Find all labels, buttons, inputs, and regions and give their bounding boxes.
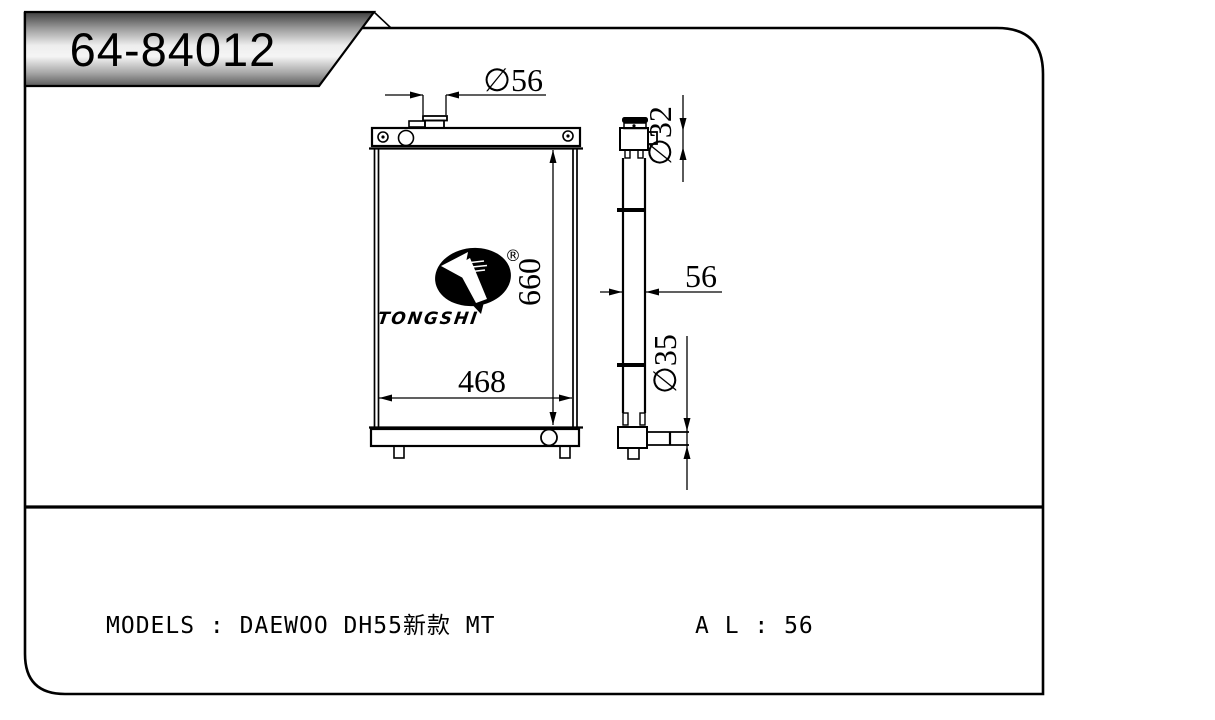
arrowhead [684,418,691,431]
dim-label-inlet-pipe: ∅32 [642,106,678,166]
side-filler-dot [632,124,635,127]
arrowhead [446,92,459,99]
dim-label-core-width: 468 [458,363,506,399]
arrowhead [684,446,691,459]
top-tank-bolt-left-dot [381,135,384,138]
side-pin-bottom-left [623,413,628,425]
arrowhead [609,289,622,296]
spec-column-left: MODELS : DAEWOO DH55新款 MT CORE SIZE : 66… [106,536,496,720]
spec-row-dpi: DPI : [695,716,814,720]
dim-filler-diameter: ∅56 [385,62,546,115]
spec-row-core-size: CORE SIZE : 660*468 [106,716,496,720]
dim-label-core-height: 660 [511,258,547,306]
arrowhead [410,92,423,99]
arrowhead [379,395,392,402]
side-bottom-foot [628,448,639,459]
dim-core-height: 660 [511,150,557,425]
spec-row-al: A L : 56 [695,608,814,644]
brand-name: TONGSHI [376,309,480,329]
drawing-sheet: ∅56 660 468 ∅32 [0,0,1215,720]
arrowhead [550,150,557,163]
spec-row-models: MODELS : DAEWOO DH55新款 MT [106,608,496,644]
dim-core-depth: 56 [600,258,722,296]
dim-outlet-pipe: ∅35 [647,334,691,490]
banner-ribbon-fold [374,12,391,28]
side-pin-top-left [625,150,630,158]
dim-label-filler-diameter: ∅56 [483,62,543,98]
part-number-banner: 64-84012 [25,12,391,86]
part-number-text: 64-84012 [70,23,277,76]
spec-column-right: A L : 56 DPI : OEM : NISSENS: [695,536,814,720]
top-tank-bolt-right-dot [566,134,569,137]
dim-inlet-pipe: ∅32 [642,95,687,182]
top-tank-port [399,131,414,146]
dim-label-outlet-pipe: ∅35 [647,334,683,394]
arrowhead [680,147,687,160]
bottom-tank [371,429,579,446]
filler-neck [425,121,444,129]
bottom-foot-right [560,446,570,458]
arrowhead [680,118,687,131]
registered-trademark: ® [505,246,521,265]
arrowhead [559,395,572,402]
side-bottom-tank [618,427,647,448]
brand-logo: ® TONGSHI [376,244,521,329]
arrowhead [550,412,557,425]
dim-label-core-depth: 56 [685,258,717,294]
side-view [617,117,689,459]
dim-core-width: 468 [379,363,572,402]
bottom-foot-left [394,446,404,458]
arrowhead [646,289,659,296]
bottom-tank-port [541,430,557,446]
overflow-spout [409,121,425,127]
dimension-annotations: ∅56 660 468 ∅32 [379,62,722,490]
side-pin-bottom-right [640,413,645,425]
